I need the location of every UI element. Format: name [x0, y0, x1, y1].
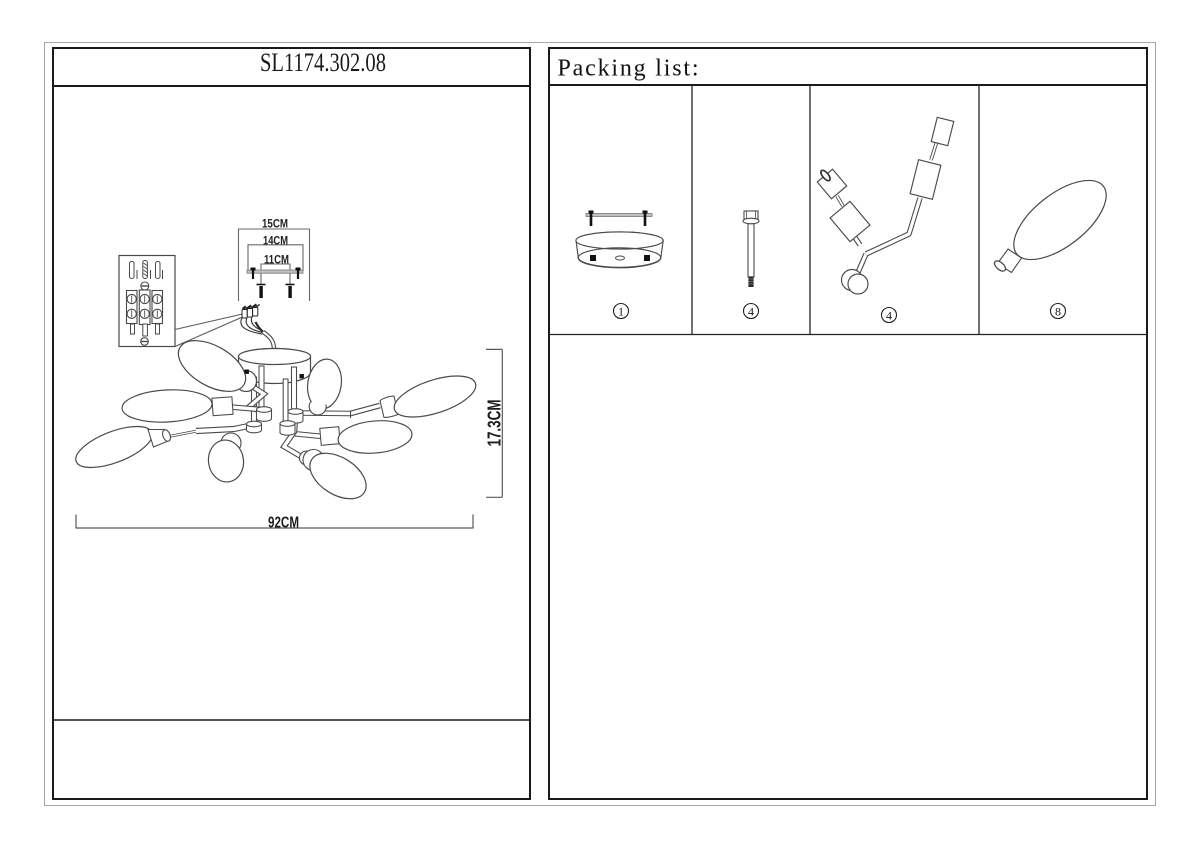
- svg-text:17.3CM: 17.3CM: [485, 400, 505, 447]
- svg-text:92CM: 92CM: [268, 515, 299, 532]
- svg-text:4: 4: [886, 309, 892, 323]
- svg-text:11CM: 11CM: [264, 253, 289, 267]
- svg-text:8: 8: [1055, 305, 1061, 319]
- svg-text:1: 1: [618, 305, 624, 319]
- svg-text:15CM: 15CM: [262, 217, 288, 231]
- svg-text:4: 4: [748, 305, 754, 319]
- svg-text:Packing list:: Packing list:: [558, 56, 699, 82]
- svg-text:14CM: 14CM: [263, 233, 288, 247]
- svg-text:SL1174.302.08: SL1174.302.08: [260, 48, 386, 77]
